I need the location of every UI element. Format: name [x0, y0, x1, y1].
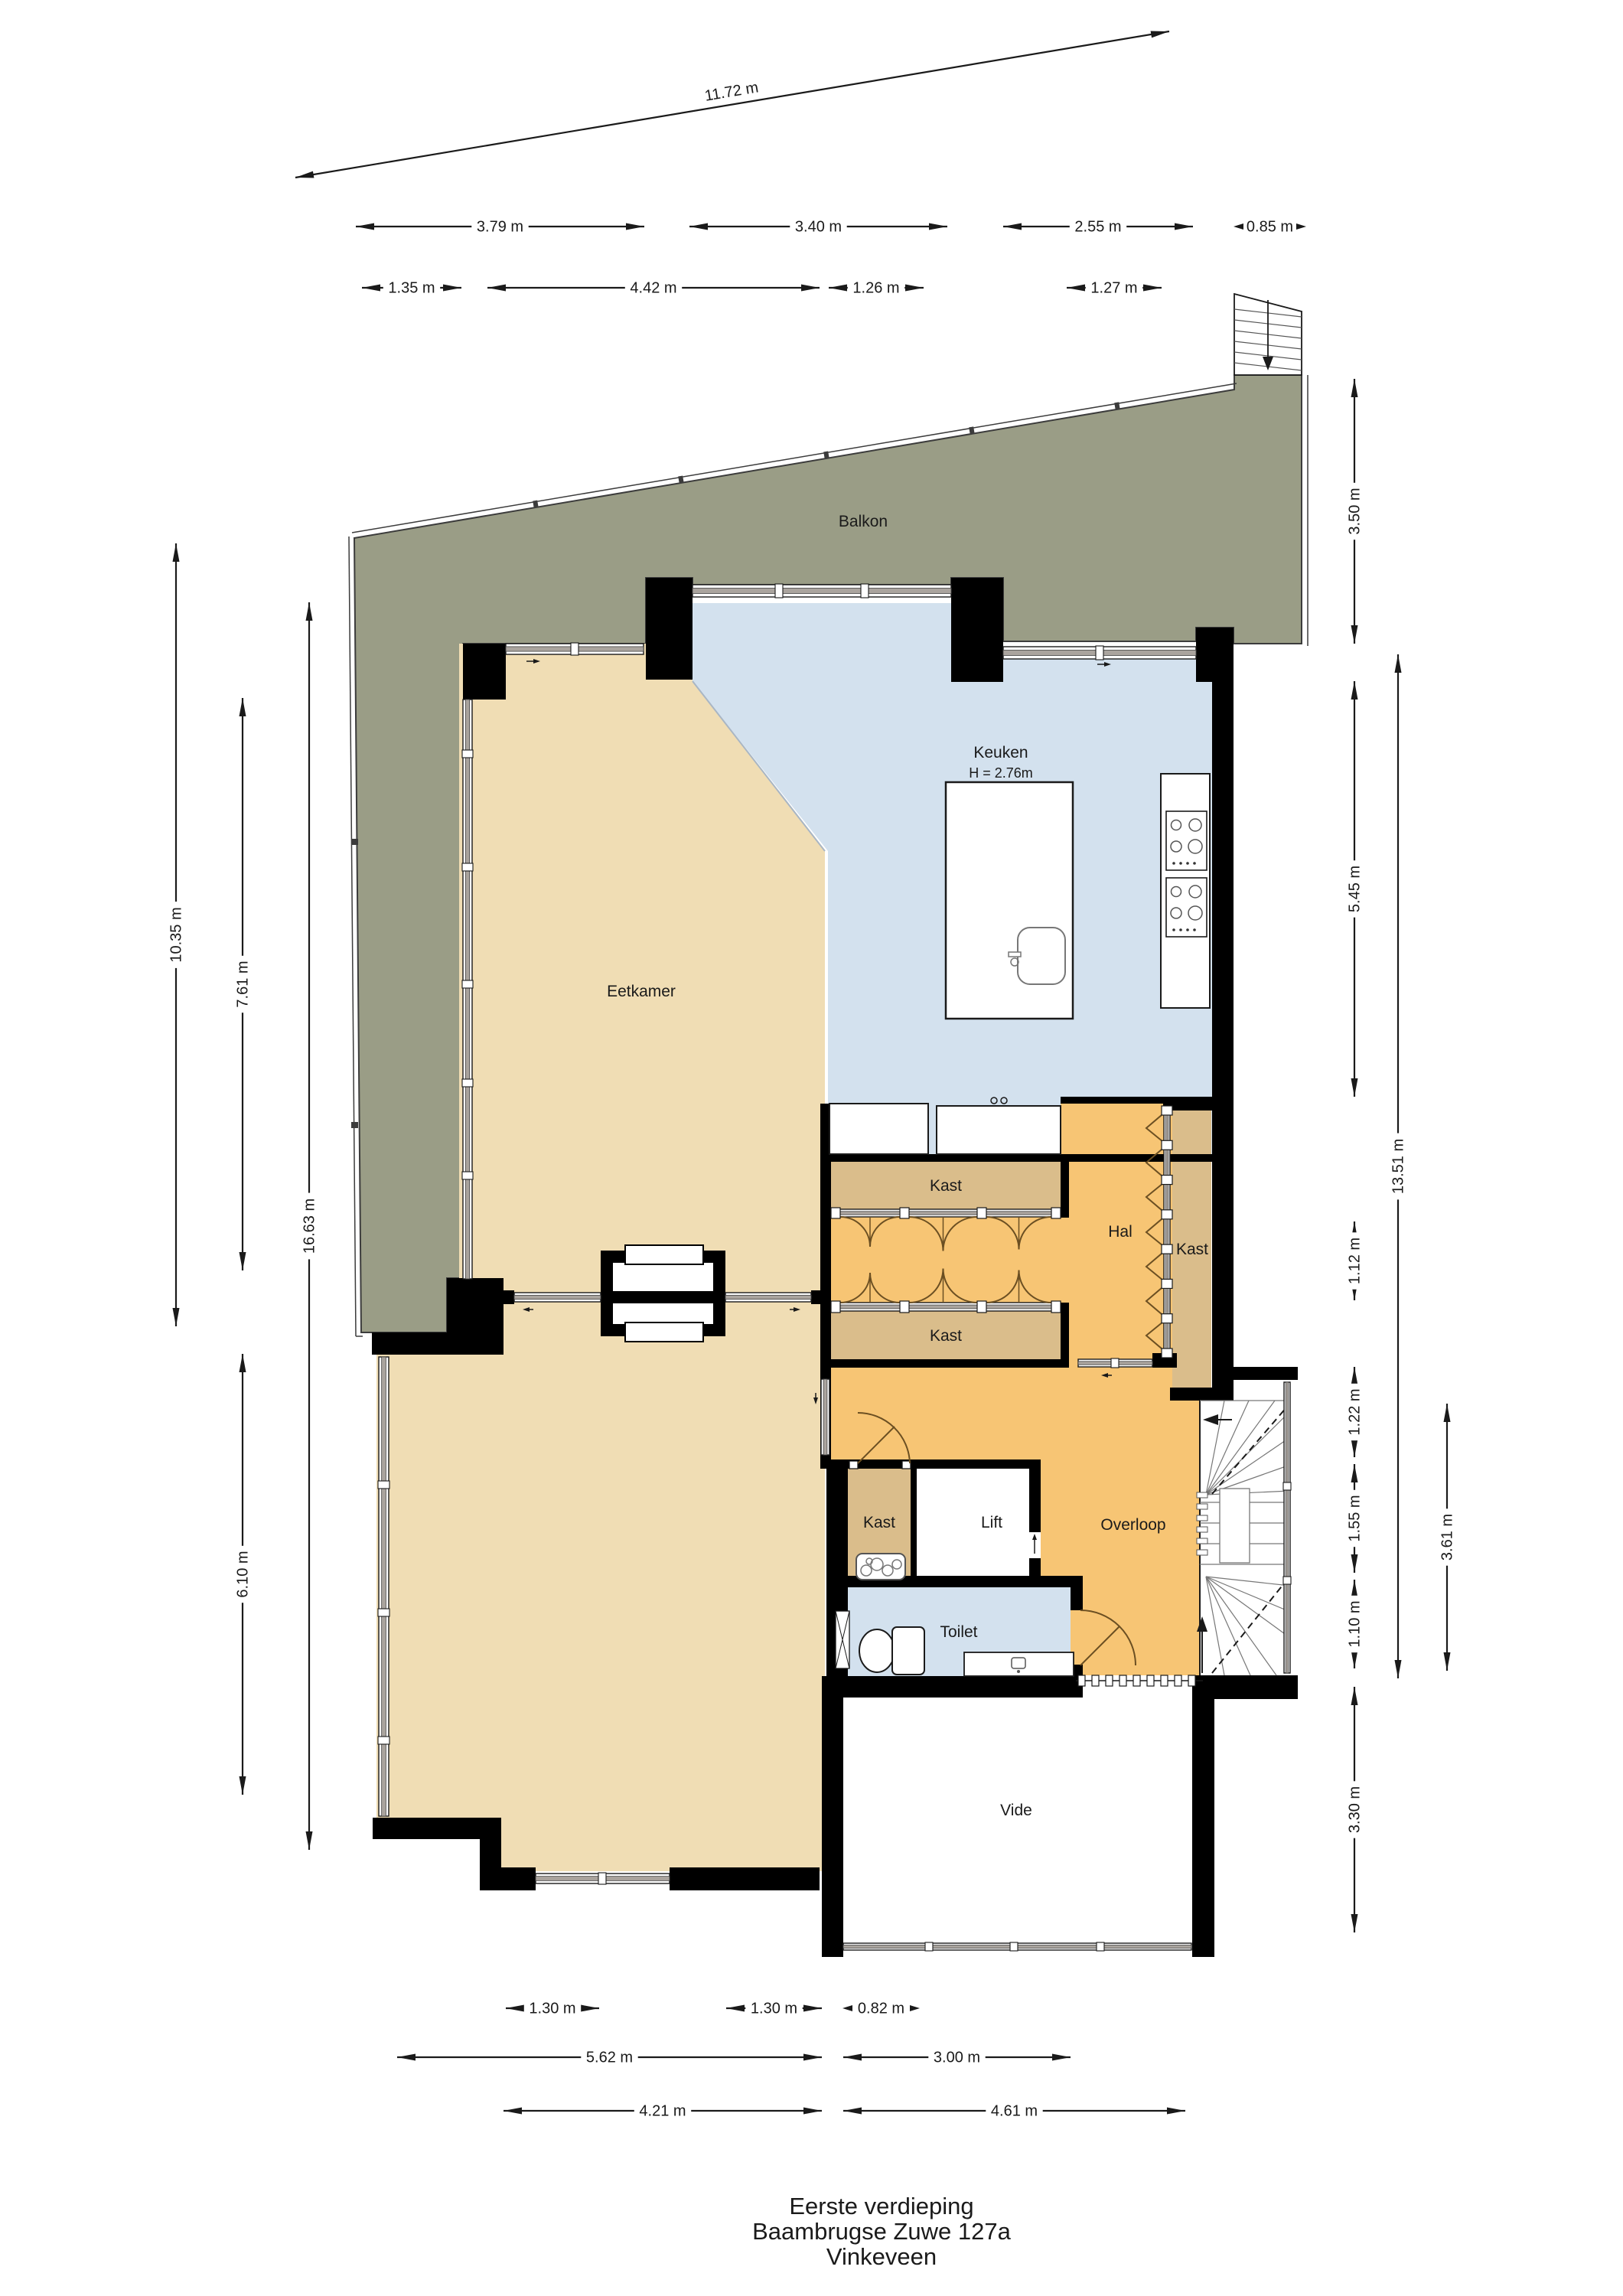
svg-text:Toilet: Toilet [940, 1623, 977, 1641]
svg-text:Kast: Kast [930, 1327, 962, 1345]
svg-text:0.82 m: 0.82 m [858, 2000, 904, 2017]
svg-text:Eetkamer: Eetkamer [607, 983, 676, 1000]
svg-text:Eerste verdieping: Eerste verdieping [789, 2193, 973, 2219]
svg-text:3.00 m: 3.00 m [934, 2049, 980, 2066]
svg-text:16.63 m: 16.63 m [301, 1199, 318, 1254]
svg-text:1.12 m: 1.12 m [1346, 1238, 1363, 1284]
svg-text:1.26 m: 1.26 m [852, 279, 899, 296]
svg-text:Keuken: Keuken [973, 744, 1028, 762]
svg-text:5.45 m: 5.45 m [1346, 866, 1363, 912]
svg-text:10.35 m: 10.35 m [168, 907, 184, 962]
svg-text:Balkon: Balkon [839, 513, 888, 530]
svg-text:3.61 m: 3.61 m [1439, 1514, 1455, 1561]
svg-text:3.79 m: 3.79 m [477, 218, 523, 235]
svg-text:4.21 m: 4.21 m [639, 2102, 686, 2119]
svg-text:Hal: Hal [1108, 1223, 1133, 1241]
svg-text:Kast: Kast [1176, 1241, 1208, 1258]
svg-text:3.30 m: 3.30 m [1346, 1786, 1363, 1833]
svg-text:3.50 m: 3.50 m [1346, 488, 1363, 534]
svg-text:1.30 m: 1.30 m [751, 2000, 797, 2017]
svg-text:1.35 m: 1.35 m [388, 279, 435, 296]
svg-text:13.51 m: 13.51 m [1390, 1139, 1406, 1194]
svg-text:Lift: Lift [981, 1514, 1002, 1531]
svg-text:H = 2.76m: H = 2.76m [969, 765, 1033, 781]
svg-text:Baambrugse Zuwe 127a: Baambrugse Zuwe 127a [752, 2218, 1012, 2245]
svg-text:Kast: Kast [863, 1514, 895, 1531]
svg-text:1.30 m: 1.30 m [529, 2000, 575, 2017]
svg-text:5.62 m: 5.62 m [586, 2049, 633, 2066]
svg-text:1.22 m: 1.22 m [1346, 1388, 1363, 1435]
svg-text:Vinkeveen: Vinkeveen [826, 2243, 937, 2270]
svg-text:2.55 m: 2.55 m [1074, 218, 1121, 235]
svg-text:1.27 m: 1.27 m [1090, 279, 1137, 296]
svg-text:1.55 m: 1.55 m [1346, 1495, 1363, 1541]
svg-text:Kast: Kast [930, 1177, 962, 1195]
svg-text:0.85 m: 0.85 m [1247, 218, 1293, 235]
svg-text:6.10 m: 6.10 m [234, 1551, 251, 1597]
svg-text:Overloop: Overloop [1100, 1516, 1165, 1534]
svg-text:4.61 m: 4.61 m [991, 2102, 1038, 2119]
svg-text:4.42 m: 4.42 m [630, 279, 676, 296]
svg-text:Vide: Vide [1000, 1802, 1032, 1819]
svg-text:3.40 m: 3.40 m [795, 218, 842, 235]
svg-text:7.61 m: 7.61 m [234, 960, 251, 1007]
svg-text:1.10 m: 1.10 m [1346, 1600, 1363, 1647]
